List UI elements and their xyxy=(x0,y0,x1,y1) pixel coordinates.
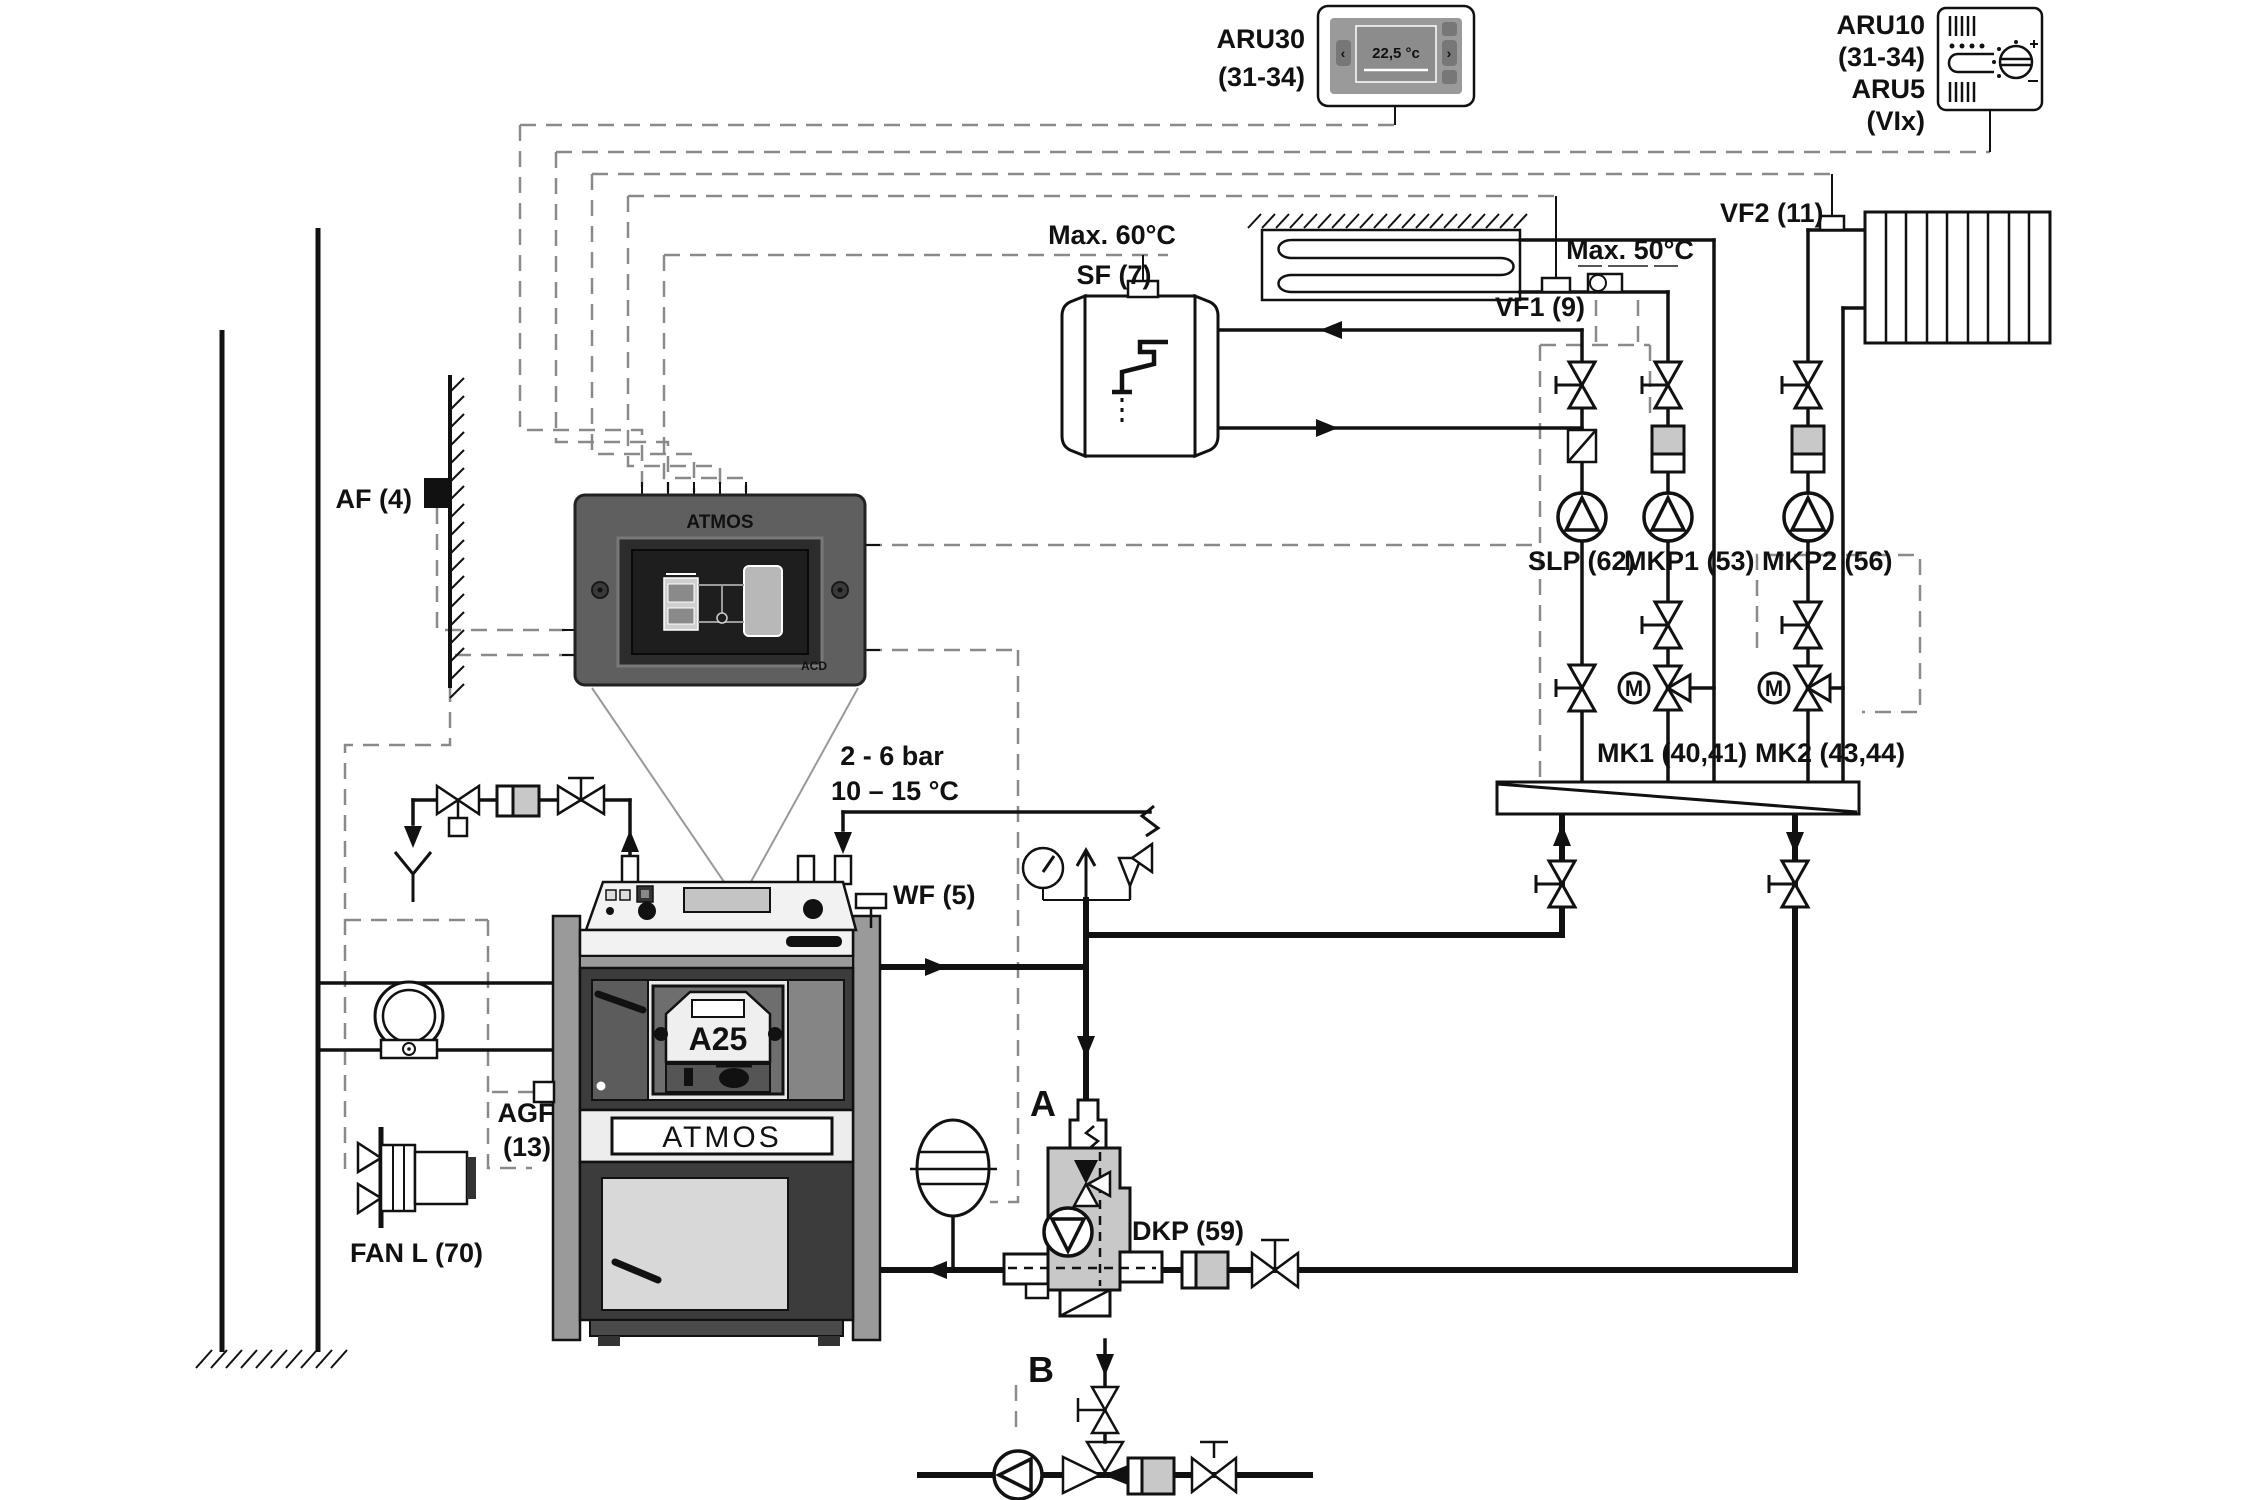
aru30-top-button[interactable] xyxy=(1442,22,1457,36)
vf1-sensor-icon xyxy=(1542,278,1570,292)
svg-text:›: › xyxy=(1447,45,1452,61)
aru10-name: ARU10 xyxy=(1836,10,1925,40)
boiler-stub-icon xyxy=(798,856,814,884)
variant-b-label: B xyxy=(1028,1349,1054,1390)
exhaust-fan: FAN L (70) xyxy=(350,1127,483,1268)
max50-thermostat-icon xyxy=(1588,274,1622,292)
shutoff-valve-icon xyxy=(558,778,604,814)
slp-pump-label: SLP (62) xyxy=(1528,546,1636,576)
return-fittings xyxy=(1182,1240,1298,1288)
radiator-icon xyxy=(1865,212,2050,343)
aru30-temp-display: 22,5 °c xyxy=(1372,45,1420,62)
radiator-circuit: VF2 (11) xyxy=(1720,174,2050,343)
svg-text:‹: ‹ xyxy=(1341,45,1346,61)
af-sensor-label: AF (4) xyxy=(336,484,413,514)
flue-pipe xyxy=(318,982,553,1058)
aru5-range: (VIx) xyxy=(1866,106,1925,136)
shutoff-valve-icon xyxy=(1192,1442,1236,1492)
temp-range-label: 10 – 15 °C xyxy=(831,776,959,806)
variant-b-line: B xyxy=(920,1340,1310,1499)
pressure-gauge-icon xyxy=(1023,848,1063,888)
air-vent-icon xyxy=(1077,850,1095,900)
acd-panel: ATMOS ACD xyxy=(575,495,865,898)
outdoor-wall: AF (4) xyxy=(336,375,465,698)
slp-lower-valve-icon xyxy=(1556,665,1595,711)
agf-label-2: (13) xyxy=(503,1132,551,1162)
mk2-valve-label: MK2 (43,44) xyxy=(1755,738,1905,768)
fan-label: FAN L (70) xyxy=(350,1238,483,1268)
filter-icon xyxy=(1792,426,1824,472)
vf1-sensor-label: VF1 (9) xyxy=(1495,292,1585,322)
mkp2-valve-icon xyxy=(1782,362,1821,408)
ground-hatch-icon xyxy=(196,1350,347,1368)
check-valve-icon xyxy=(1568,430,1596,462)
max50-label: Max. 50°C xyxy=(1566,235,1694,265)
schematic-svg: AF (4) ATMOS ACD xyxy=(0,0,2250,1500)
panel-model: ACD xyxy=(801,659,827,673)
b-fill-valve-icon xyxy=(1078,1387,1118,1433)
aru30-name: ARU30 xyxy=(1216,24,1305,54)
boiler-display[interactable] xyxy=(684,888,770,912)
manifold xyxy=(1497,782,1859,814)
manifold-supply-valve-icon xyxy=(1536,861,1575,907)
aru10-unit: ARU10 (31-34) ARU5 (VIx) xyxy=(1836,8,2042,152)
mk2-motor-letter: M xyxy=(1765,676,1783,701)
thermal-valve-icon xyxy=(437,786,479,836)
mkp2-pump-label: MKP2 (56) xyxy=(1762,546,1893,576)
shutoff-valve-icon xyxy=(1252,1240,1298,1287)
floor-heating: VF1 (9) Max. 50°C xyxy=(1248,196,1714,322)
safety-valve-icon xyxy=(1119,806,1158,900)
max60-label: Max. 60°C xyxy=(1048,220,1176,250)
aru30-unit: 22,5 °c ‹ › ARU30 (31-34) xyxy=(1216,6,1474,125)
chimney xyxy=(196,228,347,1368)
fan-icon xyxy=(358,1127,476,1228)
filter-icon xyxy=(1182,1252,1228,1288)
check-valve-icon xyxy=(1060,1290,1110,1316)
dkp-pump-label: DKP (59) xyxy=(1132,1216,1244,1246)
floor-hatch-icon xyxy=(1248,214,1527,228)
panel-brand: ATMOS xyxy=(686,512,753,533)
slp-pump-icon xyxy=(1558,493,1606,541)
boiler-stub-icon xyxy=(622,856,638,884)
mk1-valve-label: MK1 (40,41) xyxy=(1597,738,1747,768)
mk2-shutoff-valve-icon xyxy=(1782,602,1821,648)
expansion-vessel xyxy=(910,1120,997,1270)
safety-group xyxy=(1023,806,1158,900)
b-pump-icon xyxy=(994,1451,1042,1499)
variant-a-label: A xyxy=(1030,1083,1056,1124)
draft-regulator-icon xyxy=(375,982,443,1058)
mk2-mixing-valve-icon: M xyxy=(1759,666,1843,710)
pressure-label: 2 - 6 bar xyxy=(840,741,944,771)
filter-icon xyxy=(1128,1458,1174,1494)
aru30-range: (31-34) xyxy=(1218,62,1305,92)
filter-icon xyxy=(497,786,539,816)
vf2-sensor-label: VF2 (11) xyxy=(1720,198,1824,228)
wf-sensor-label: WF (5) xyxy=(893,880,975,910)
dkp-pump-icon xyxy=(1044,1208,1092,1256)
agf-label-1: AGF xyxy=(498,1098,555,1128)
mk1-shutoff-valve-icon xyxy=(1642,602,1681,648)
mkp2-pump-icon xyxy=(1784,493,1832,541)
pellet-burner: A25 xyxy=(653,986,783,1094)
mkp1-pump-label: MKP1 (53) xyxy=(1624,546,1755,576)
aru30-bottom-button[interactable] xyxy=(1442,70,1457,84)
filter-icon xyxy=(1652,426,1684,472)
aru10-range: (31-34) xyxy=(1838,42,1925,72)
sf-sensor-label: SF (7) xyxy=(1076,260,1151,290)
mk1-mixing-valve-icon: M xyxy=(1619,666,1714,710)
burner-model: A25 xyxy=(689,1021,748,1057)
boiler-brand: ATMOS xyxy=(662,1121,781,1154)
mkp1-valve-icon xyxy=(1642,362,1681,408)
heating-schematic: AF (4) ATMOS ACD xyxy=(0,0,2250,1500)
vf2-sensor-icon xyxy=(1820,216,1844,230)
aru5-name: ARU5 xyxy=(1851,74,1925,104)
drain-funnel-icon xyxy=(395,852,431,902)
slp-valve-icon xyxy=(1556,362,1595,408)
af-sensor-icon xyxy=(424,478,450,508)
boiler-stub-icon xyxy=(835,856,851,884)
mkp1-pump-icon xyxy=(1644,493,1692,541)
manifold-return-valve-icon xyxy=(1769,861,1808,907)
mk1-motor-letter: M xyxy=(1625,676,1643,701)
